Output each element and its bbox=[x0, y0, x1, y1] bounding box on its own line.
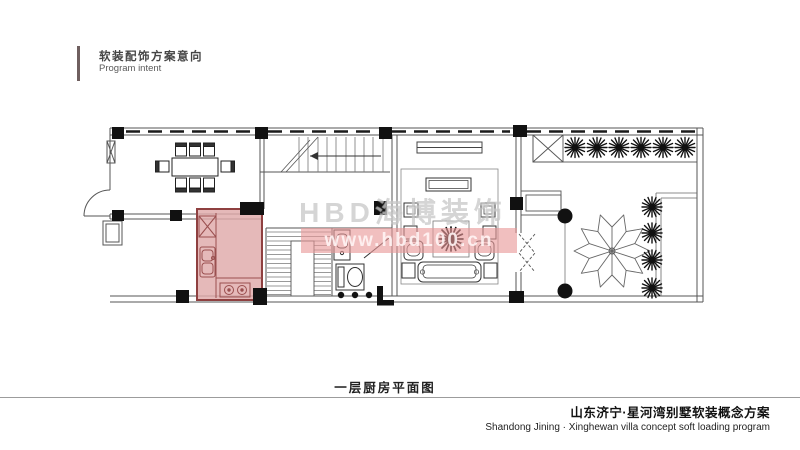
kitchen-highlight bbox=[197, 209, 262, 300]
footer-divider bbox=[0, 397, 800, 398]
folding-door bbox=[519, 234, 535, 272]
footer-title-en: Shandong Jining · Xinghewan villa concep… bbox=[485, 422, 770, 433]
slide-page: 软装配饰方案意向 Program intent bbox=[0, 0, 800, 450]
entry-door bbox=[84, 141, 122, 245]
garden-terrace bbox=[521, 135, 697, 299]
dining-room bbox=[156, 143, 235, 192]
kitchen-highlight-area bbox=[197, 209, 262, 300]
tree-icon bbox=[574, 215, 650, 287]
footer: 山东济宁·星河湾别墅软装概念方案 Shandong Jining · Xingh… bbox=[485, 402, 770, 433]
watermark-url: www.hbd100.cn bbox=[301, 228, 517, 253]
staircase-upper bbox=[281, 137, 383, 172]
footer-title-cn: 山东济宁·星河湾别墅软装概念方案 bbox=[485, 402, 770, 421]
watermark-brand: HBD海博装饰 bbox=[278, 191, 528, 231]
plan-caption: 一层厨房平面图 bbox=[330, 377, 440, 396]
